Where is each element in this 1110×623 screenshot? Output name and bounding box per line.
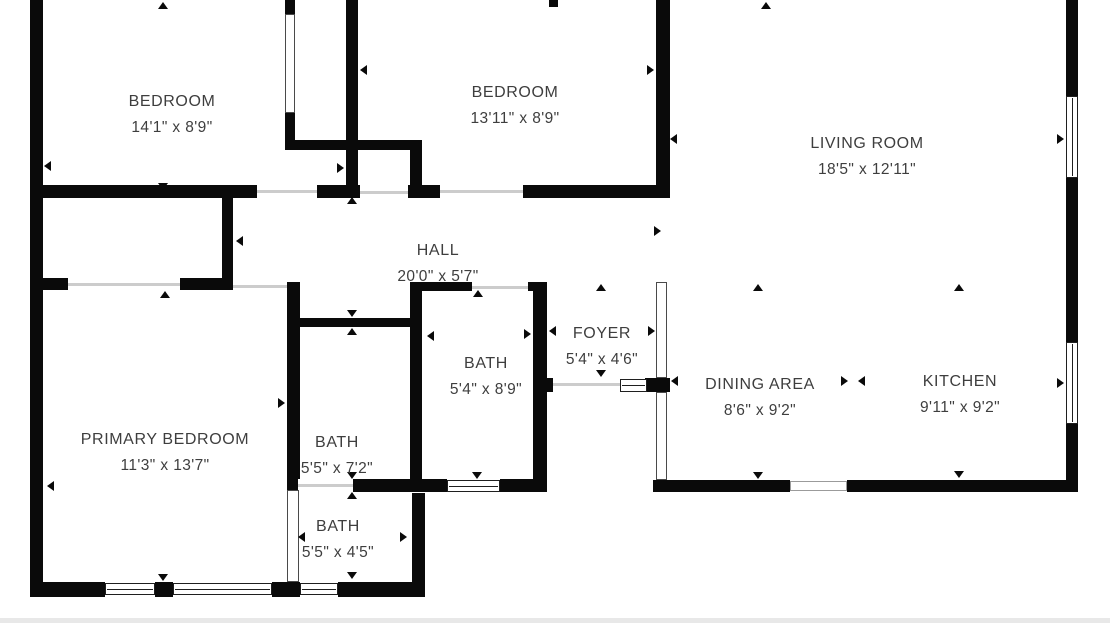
room-label: BATH5'4" x 8'9" — [450, 355, 522, 399]
room-label: KITCHEN9'11" x 9'2" — [920, 373, 1000, 417]
wall-segment — [293, 318, 412, 327]
wall-segment — [408, 185, 440, 198]
dimension-arrow — [954, 284, 964, 291]
room-label: BATH5'5" x 4'5" — [302, 518, 374, 562]
dimension-arrow — [596, 370, 606, 377]
wall-segment — [222, 198, 233, 290]
wall-segment — [500, 479, 547, 492]
room-label: FOYER5'4" x 4'6" — [566, 325, 638, 369]
dimension-arrow — [524, 329, 531, 339]
dimension-arrow — [671, 376, 678, 386]
dimension-arrow — [753, 284, 763, 291]
room-name: BEDROOM — [470, 84, 559, 102]
window-muntin — [449, 486, 498, 487]
wall-segment — [30, 0, 43, 597]
room-label: PRIMARY BEDROOM11'3" x 13'7" — [81, 431, 249, 475]
dimension-arrow — [473, 290, 483, 297]
room-dimensions: 8'6" x 9'2" — [705, 402, 815, 420]
wall-segment — [346, 0, 358, 198]
dimension-arrow — [347, 492, 357, 499]
wall-segment — [353, 479, 447, 492]
wall-segment — [272, 582, 300, 597]
wall-segment — [523, 185, 670, 198]
dimension-arrow — [596, 284, 606, 291]
glazed-partition — [285, 14, 295, 113]
door-opening — [440, 190, 523, 193]
dimension-arrow — [761, 2, 771, 9]
dimension-arrow — [670, 134, 677, 144]
window — [447, 480, 500, 492]
wall-segment — [285, 0, 295, 14]
dimension-arrow — [654, 226, 661, 236]
room-name: LIVING ROOM — [810, 135, 923, 153]
room-name: BATH — [302, 518, 374, 536]
room-label: BEDROOM14'1" x 8'9" — [129, 93, 216, 137]
wall-segment — [645, 378, 670, 392]
dimension-arrow — [360, 65, 367, 75]
bottom-edge-strip — [0, 618, 1110, 623]
wall-segment — [528, 282, 547, 291]
wall-segment — [1066, 0, 1078, 96]
room-name: PRIMARY BEDROOM — [81, 431, 249, 449]
window-muntin — [1072, 98, 1073, 176]
dimension-arrow — [1057, 134, 1064, 144]
dimension-arrow — [347, 310, 357, 317]
wall-segment — [180, 278, 233, 290]
wall-segment — [30, 185, 257, 198]
wall-segment — [549, 0, 558, 7]
room-dimensions: 18'5" x 12'11" — [810, 161, 923, 179]
dimension-arrow — [160, 291, 170, 298]
window — [173, 583, 272, 595]
wall-segment — [30, 278, 68, 290]
room-label: BEDROOM13'11" x 8'9" — [470, 84, 559, 128]
room-name: BATH — [301, 434, 373, 452]
dimension-arrow — [278, 398, 285, 408]
door-opening — [553, 383, 620, 386]
room-dimensions: 13'11" x 8'9" — [470, 110, 559, 128]
dimension-arrow — [753, 472, 763, 479]
dimension-arrow — [347, 572, 357, 579]
room-name: BATH — [450, 355, 522, 373]
wall-segment — [847, 480, 1078, 492]
dimension-arrow — [472, 472, 482, 479]
dimension-arrow — [158, 2, 168, 9]
dimension-arrow — [236, 236, 243, 246]
floor-plan: BEDROOM14'1" x 8'9"BEDROOM13'11" x 8'9"L… — [0, 0, 1110, 623]
door-opening — [257, 190, 317, 193]
door-opening — [233, 285, 287, 288]
window-muntin — [302, 589, 336, 590]
glazed-partition — [656, 392, 667, 480]
dimension-arrow — [337, 163, 344, 173]
dimension-arrow — [347, 197, 357, 204]
room-name: BEDROOM — [129, 93, 216, 111]
window — [105, 583, 155, 595]
dimension-arrow — [44, 161, 51, 171]
room-name: HALL — [397, 242, 478, 260]
wall-segment — [287, 140, 422, 150]
dimension-arrow — [549, 326, 556, 336]
dimension-arrow — [158, 183, 168, 190]
window — [620, 379, 647, 392]
dimension-arrow — [400, 532, 407, 542]
room-dimensions: 5'4" x 4'6" — [566, 351, 638, 369]
wall-segment — [30, 582, 105, 597]
door-opening — [298, 484, 353, 487]
room-name: KITCHEN — [920, 373, 1000, 391]
window-muntin — [175, 589, 270, 590]
dimension-arrow — [648, 326, 655, 336]
room-dimensions: 14'1" x 8'9" — [129, 119, 216, 137]
room-name: FOYER — [566, 325, 638, 343]
wall-segment — [155, 582, 173, 597]
room-dimensions: 5'4" x 8'9" — [450, 381, 522, 399]
door-opening — [472, 286, 528, 289]
room-dimensions: 5'5" x 4'5" — [302, 544, 374, 562]
dimension-arrow — [47, 481, 54, 491]
dimension-arrow — [347, 328, 357, 335]
dimension-arrow — [841, 376, 848, 386]
window-muntin — [107, 589, 153, 590]
wall-segment — [338, 582, 425, 597]
dimension-arrow — [158, 574, 168, 581]
wall-segment — [287, 282, 300, 479]
door-opening — [360, 191, 408, 194]
wall-segment — [1066, 178, 1078, 342]
room-dimensions: 20'0" x 5'7" — [397, 268, 478, 286]
room-label: LIVING ROOM18'5" x 12'11" — [810, 135, 923, 179]
room-name: DINING AREA — [705, 376, 815, 394]
dimension-arrow — [1057, 378, 1064, 388]
room-dimensions: 9'11" x 9'2" — [920, 399, 1000, 417]
window — [1066, 342, 1078, 424]
sliding-door — [790, 481, 847, 491]
window-muntin — [622, 385, 645, 386]
dimension-arrow — [858, 376, 865, 386]
room-label: BATH5'5" x 7'2" — [301, 434, 373, 478]
room-dimensions: 5'5" x 7'2" — [301, 460, 373, 478]
dimension-arrow — [427, 331, 434, 341]
room-label: HALL20'0" x 5'7" — [397, 242, 478, 286]
window-muntin — [1072, 344, 1073, 422]
dimension-arrow — [954, 471, 964, 478]
room-label: DINING AREA8'6" x 9'2" — [705, 376, 815, 420]
wall-segment — [653, 480, 790, 492]
wall-segment — [533, 378, 553, 392]
wall-segment — [656, 0, 670, 198]
door-opening — [68, 283, 180, 286]
dimension-arrow — [647, 65, 654, 75]
window — [300, 583, 338, 595]
wall-segment — [410, 282, 422, 479]
window — [1066, 96, 1078, 178]
glazed-partition — [656, 282, 667, 378]
room-dimensions: 11'3" x 13'7" — [81, 457, 249, 475]
